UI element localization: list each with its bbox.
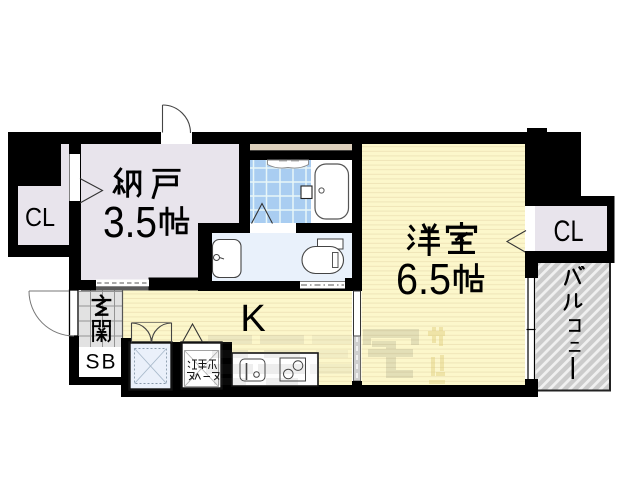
svg-text:K: K: [240, 298, 265, 340]
svg-text:CL: CL: [25, 202, 55, 232]
svg-text:SB: SB: [86, 351, 116, 374]
svg-text:3.5: 3.5: [103, 198, 157, 247]
svg-text:CL: CL: [554, 215, 584, 248]
svg-text:6.5: 6.5: [396, 255, 451, 304]
